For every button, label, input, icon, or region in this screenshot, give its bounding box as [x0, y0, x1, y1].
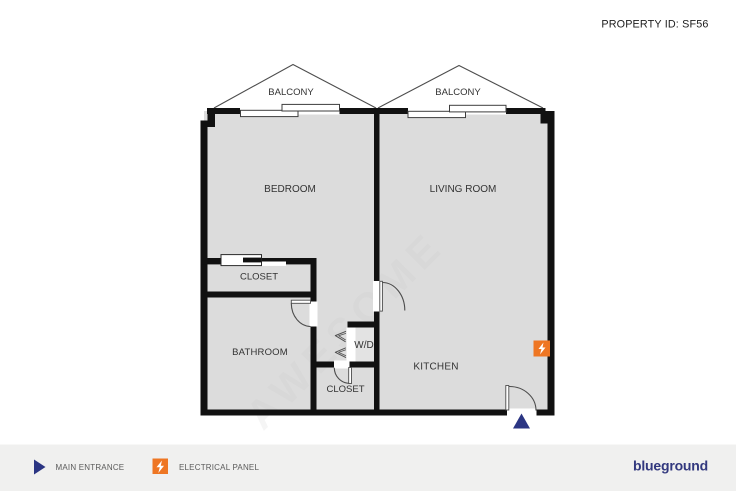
svg-text:CLOSET: CLOSET	[326, 384, 364, 395]
svg-text:BALCONY: BALCONY	[435, 87, 481, 98]
svg-text:LIVING ROOM: LIVING ROOM	[430, 184, 497, 195]
svg-text:BEDROOM: BEDROOM	[264, 184, 316, 195]
svg-text:ELECTRICAL PANEL: ELECTRICAL PANEL	[179, 463, 259, 472]
svg-text:KITCHEN: KITCHEN	[413, 362, 458, 373]
svg-text:BATHROOM: BATHROOM	[232, 347, 288, 358]
svg-text:blueground: blueground	[633, 457, 708, 473]
svg-text:W/D: W/D	[354, 340, 373, 351]
svg-text:PROPERTY ID: SF56: PROPERTY ID: SF56	[601, 19, 708, 31]
svg-text:BALCONY: BALCONY	[268, 87, 314, 98]
svg-text:MAIN ENTRANCE: MAIN ENTRANCE	[56, 463, 125, 472]
svg-text:CLOSET: CLOSET	[240, 272, 278, 283]
